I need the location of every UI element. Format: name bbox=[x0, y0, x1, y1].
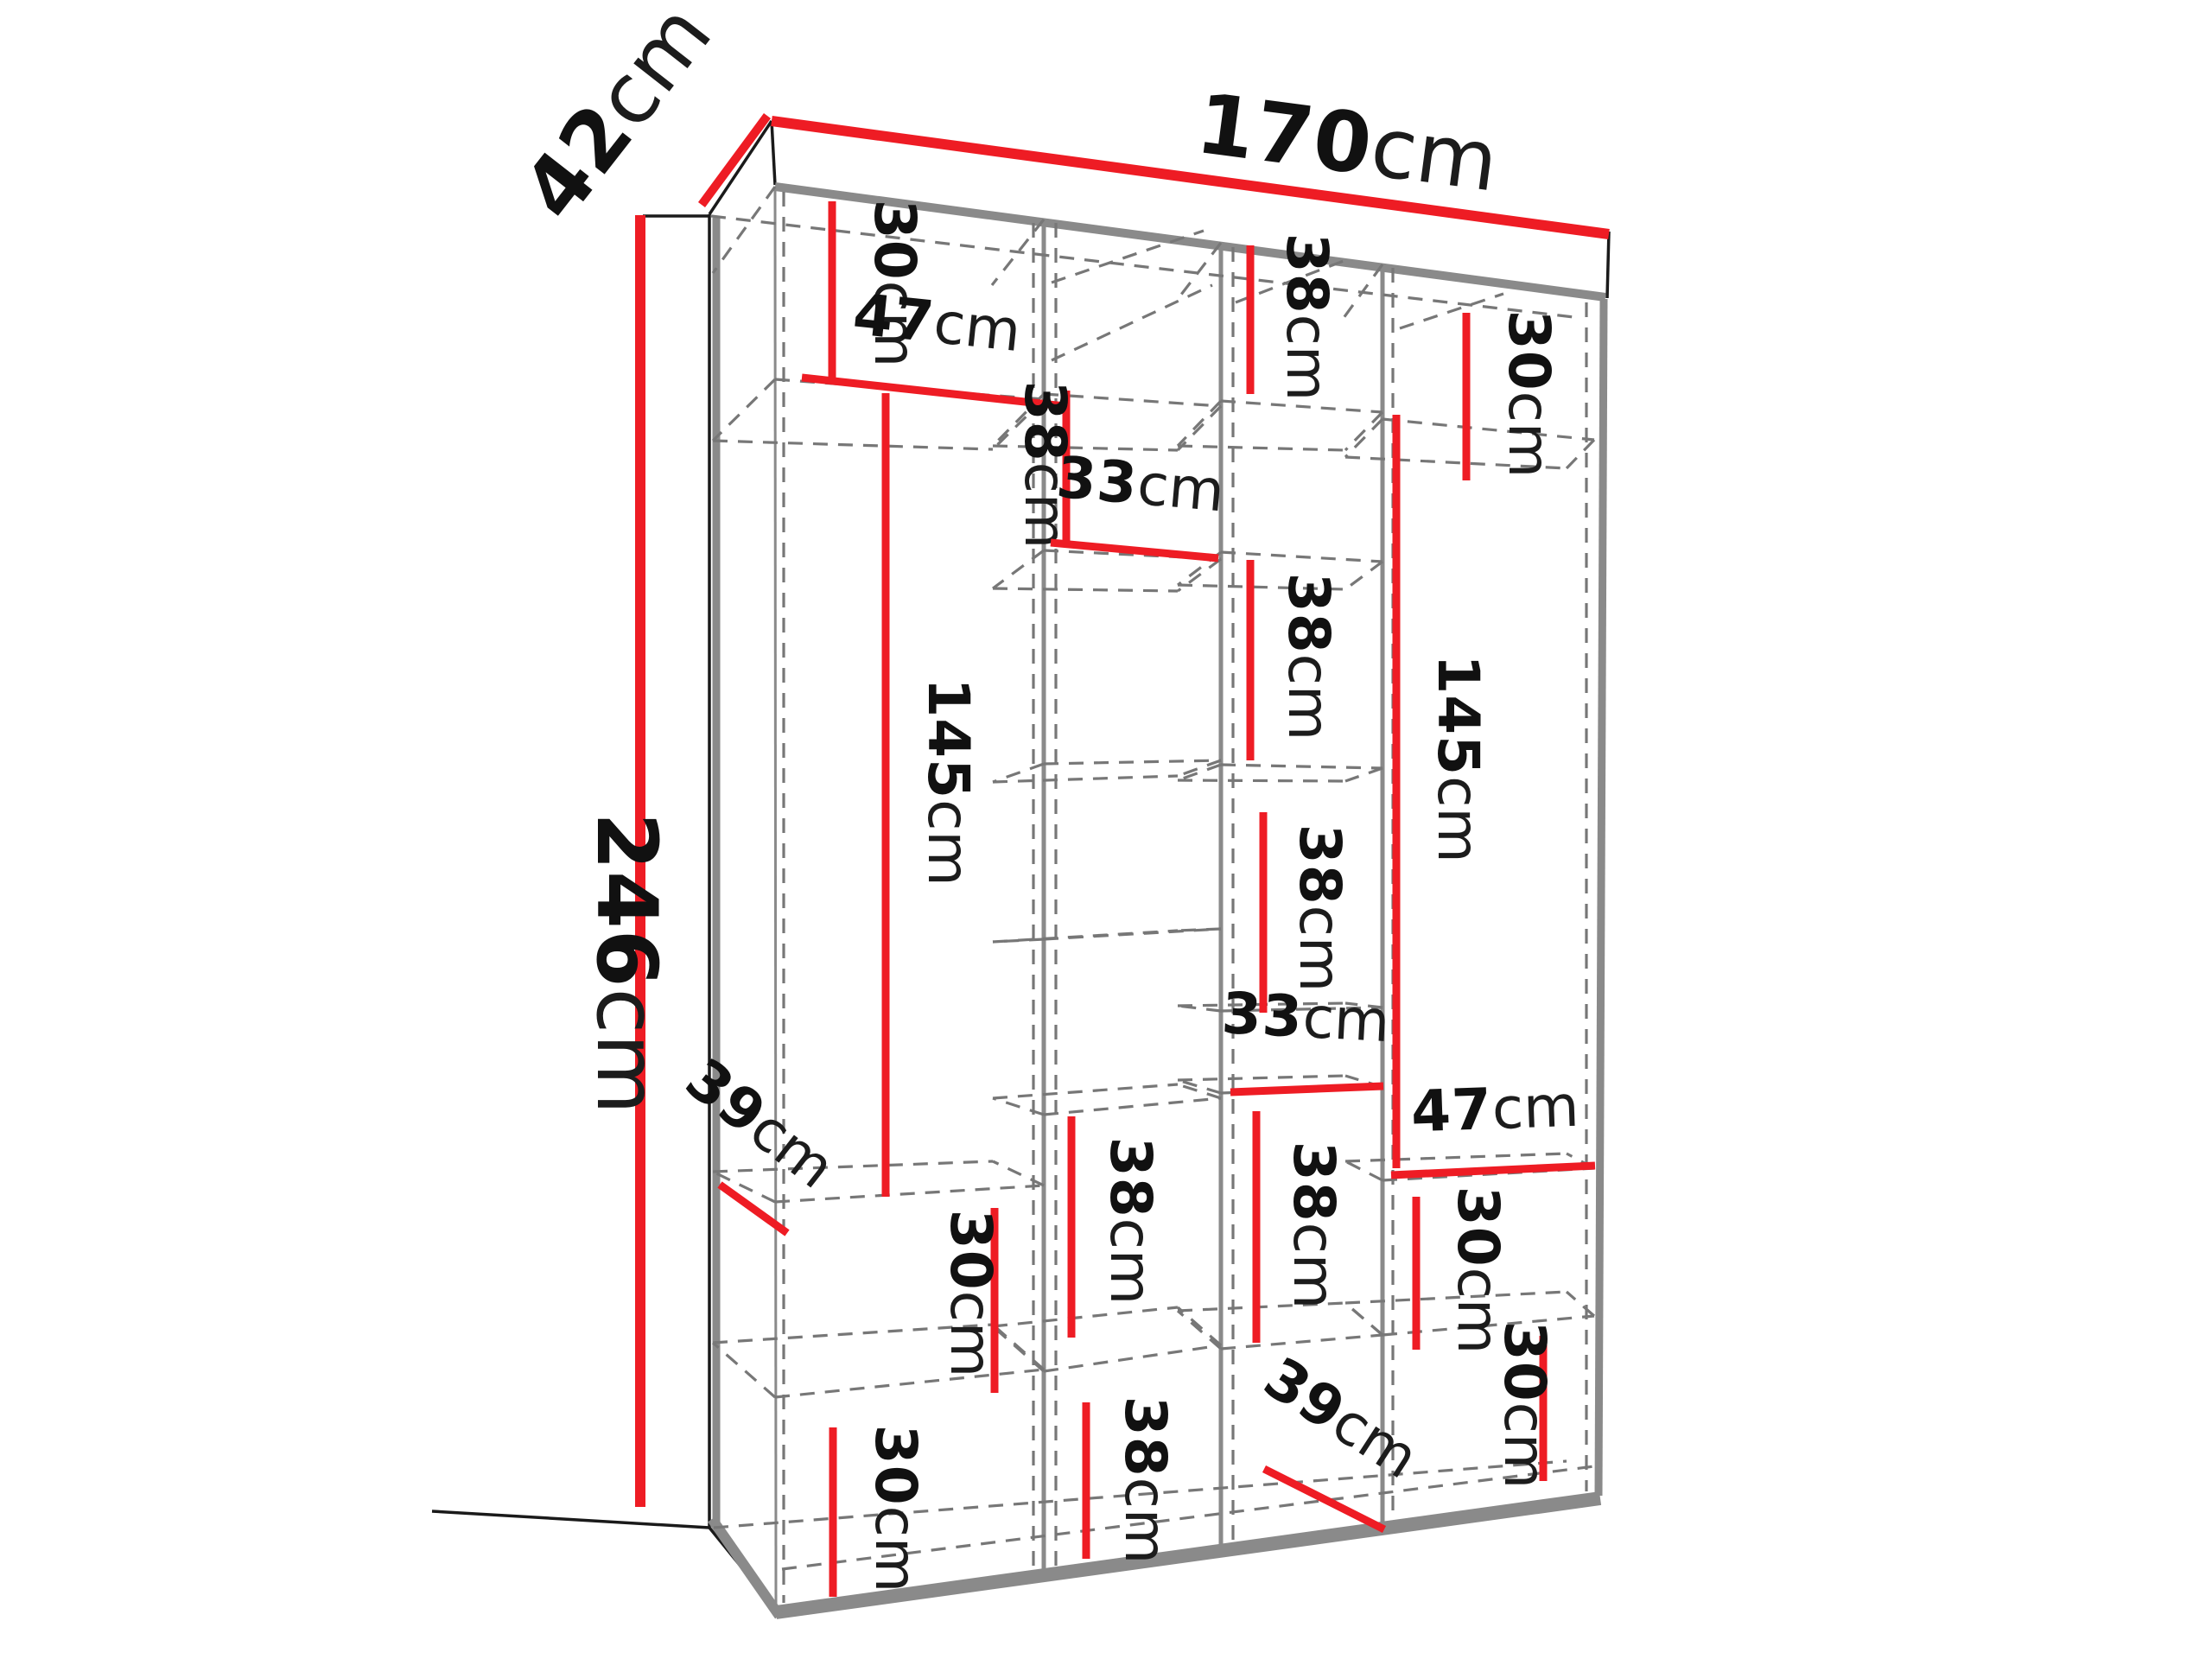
dimension-label-c4-47: 47cm bbox=[1410, 1073, 1580, 1146]
dimension-label-c3-38-b: 38cm bbox=[1275, 573, 1342, 741]
dimension-label-c1-145: 145cm bbox=[915, 677, 982, 886]
dimension-label-c1-30-mid: 30cm bbox=[938, 1210, 1004, 1377]
diagram-canvas: 42cm170cm246cm30cm47cm145cm39cm30cm30cm3… bbox=[0, 0, 2212, 1659]
dimension-label-c4-30-bot: 30cm bbox=[1491, 1321, 1558, 1489]
dimension-label-c2-38-b: 38cm bbox=[1097, 1137, 1164, 1305]
dimension-label-c3-38-a: 38cm bbox=[1274, 233, 1340, 401]
dimension-label-height-246: 246cm bbox=[578, 812, 675, 1115]
outer-edge bbox=[1607, 232, 1609, 298]
dimension-label-depth-42: 42cm bbox=[504, 0, 730, 238]
dimension-label-c3-33: 33cm bbox=[1220, 980, 1391, 1055]
panel-edge bbox=[1599, 299, 1604, 1496]
front-face bbox=[775, 185, 1605, 1610]
dimension-label-c3-38-c: 38cm bbox=[1287, 824, 1353, 992]
dimension-label-c4-30-top: 30cm bbox=[1496, 310, 1562, 478]
dimension-label-c4-145: 145cm bbox=[1425, 654, 1491, 862]
dimension-label-c2-38-c: 38cm bbox=[1112, 1396, 1179, 1564]
dimension-label-c3-38-d: 38cm bbox=[1281, 1141, 1347, 1309]
dimension-label-c1-30-bot: 30cm bbox=[862, 1425, 929, 1592]
outer-edge bbox=[432, 1511, 709, 1528]
wardrobe-dimension-diagram: 42cm170cm246cm30cm47cm145cm39cm30cm30cm3… bbox=[0, 0, 2212, 1659]
